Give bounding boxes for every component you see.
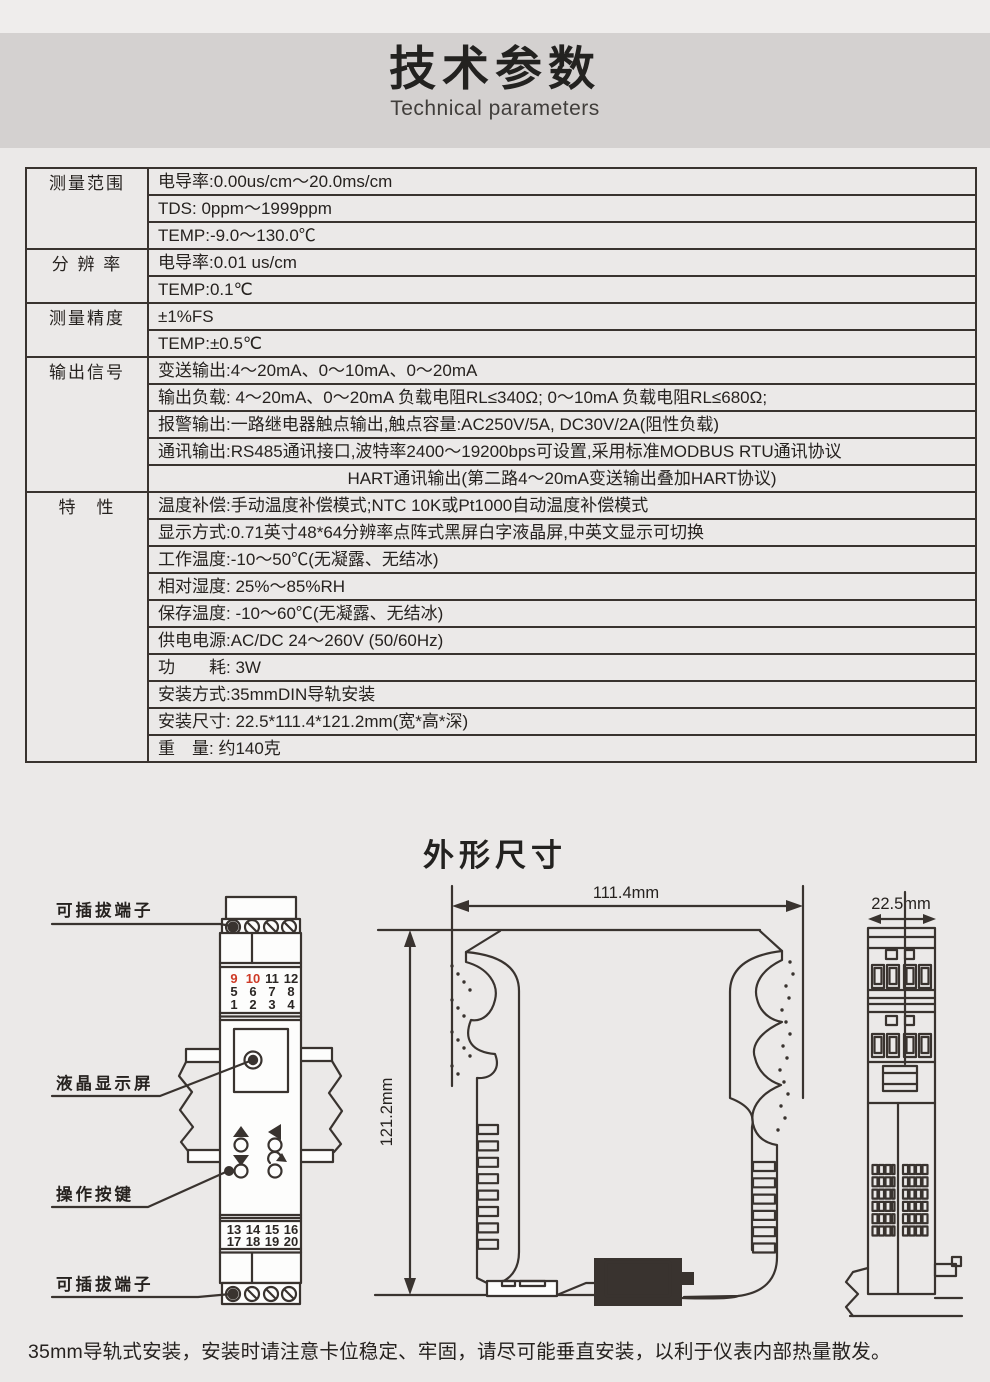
spec-value: 保存温度: -10～60℃(无凝露、无结冰) [148,600,976,627]
spec-row: 重 量: 约140克 [26,735,976,762]
spec-row: TEMP:±0.5℃ [26,330,976,357]
spec-row: 测量精度 ±1%FS [26,303,976,330]
title-band: 技术参数 Technical parameters [0,33,990,148]
spec-section-label: 特 性 [26,492,148,762]
spec-row: 相对湿度: 25%～85%RH [26,573,976,600]
spec-row: 通讯输出:RS485通讯接口,波特率2400～19200bps可设置,采用标准M… [26,438,976,465]
spec-value: TDS: 0ppm～1999ppm [148,195,976,222]
terminal-number: 1 [230,997,237,1012]
spec-value: 供电电源:AC/DC 24～260V (50/60Hz) [148,627,976,654]
width-dimension: 111.4mm [452,884,803,1098]
spec-row: 报警输出:一路继电器触点输出,触点容量:AC250V/5A, DC30V/2A(… [26,411,976,438]
spec-row: 保存温度: -10～60℃(无凝露、无结冰) [26,600,976,627]
spec-row: 安装方式:35mmDIN导轨安装 [26,681,976,708]
spec-value: 报警输出:一路继电器触点输出,触点容量:AC250V/5A, DC30V/2A(… [148,411,976,438]
spec-row: 安装尺寸: 22.5*111.4*121.2mm(宽*高*深) [26,708,976,735]
spec-row: TEMP:-9.0～130.0℃ [26,222,976,249]
dimension-drawings: 9 10 11 12 5 6 7 8 1 2 3 4 [0,880,990,1322]
installation-note: 35mm导轨式安装，安装时请注意卡位稳定、牢固，请尽可能垂直安装，以利于仪表内部… [28,1335,978,1364]
top-strip [0,0,990,33]
label-buttons: 操作按键 [56,1184,134,1204]
spec-value: TEMP:±0.5℃ [148,330,976,357]
spec-row: 显示方式:0.71英寸48*64分辨率点阵式黑屏白字液晶屏,中英文显示可切换 [26,519,976,546]
spec-section-label: 输出信号 [26,357,148,492]
dim-depth-label: 22.5mm [871,895,931,913]
terminal-number: 17 [227,1234,241,1249]
spec-row: HART通讯输出(第二路4～20mA变送输出叠加HART协议) [26,465,976,492]
spec-value: 输出负载: 4～20mA、0～20mA 负载电阻RL≤340Ω; 0～10mA … [148,384,976,411]
spec-row: 功 耗: 3W [26,654,976,681]
side-profile-drawing: 111.4mm 121.2mm [375,884,803,1306]
spec-value: 显示方式:0.71英寸48*64分辨率点阵式黑屏白字液晶屏,中英文显示可切换 [148,519,976,546]
outline-dimensions-title: 外形尺寸 [0,830,990,875]
spec-section-label: 分 辨 率 [26,249,148,303]
spec-row: 输出负载: 4～20mA、0～20mA 负载电阻RL≤340Ω; 0～10mA … [26,384,976,411]
front-view-drawing: 9 10 11 12 5 6 7 8 1 2 3 4 [52,897,342,1304]
spec-value: TEMP:-9.0～130.0℃ [148,222,976,249]
terminal-slots [872,1034,931,1057]
terminal-number: 4 [287,997,295,1012]
spec-value: 安装方式:35mmDIN导轨安装 [148,681,976,708]
terminal-number: 3 [268,997,275,1012]
vent-slots [478,1125,775,1253]
spec-value: 电导率:0.01 us/cm [148,249,976,276]
spec-value: 温度补偿:手动温度补偿模式;NTC 10K或Pt1000自动温度补偿模式 [148,492,976,519]
spec-table: 测量范围 电导率:0.00us/cm～20.0ms/cm TDS: 0ppm～1… [25,167,977,763]
spec-row: 分 辨 率 电导率:0.01 us/cm [26,249,976,276]
spec-value: 变送输出:4～20mA、0～10mA、0～20mA [148,357,976,384]
side-view-drawing: 22.5mm [846,892,962,1316]
label-terminal-top: 可插拔端子 [56,900,154,920]
spec-row: 特 性 温度补偿:手动温度补偿模式;NTC 10K或Pt1000自动温度补偿模式 [26,492,976,519]
spec-row: 供电电源:AC/DC 24～260V (50/60Hz) [26,627,976,654]
spec-section-label: 测量精度 [26,303,148,357]
terminal-slots [872,965,931,988]
latch [883,1066,917,1091]
terminal-number: 18 [246,1234,260,1249]
spec-value: 电导率:0.00us/cm～20.0ms/cm [148,168,976,195]
spec-section-label: 测量范围 [26,168,148,249]
terminal-number: 19 [265,1234,279,1249]
height-dimension: 121.2mm [378,930,416,1295]
spec-value: 通讯输出:RS485通讯接口,波特率2400～19200bps可设置,采用标准M… [148,438,976,465]
top-cap [226,897,296,919]
terminal-number: 2 [249,997,256,1012]
spec-value: 重 量: 约140克 [148,735,976,762]
spec-row: 工作温度:-10～50℃(无凝露、无结冰) [26,546,976,573]
spec-value: TEMP:0.1℃ [148,276,976,303]
vent-grid [873,1165,928,1236]
spec-value: 功 耗: 3W [148,654,976,681]
din-clip [375,1258,738,1306]
spec-value: 安装尺寸: 22.5*111.4*121.2mm(宽*高*深) [148,708,976,735]
dim-height-label: 121.2mm [378,1078,396,1147]
spec-row: 测量范围 电导率:0.00us/cm～20.0ms/cm [26,168,976,195]
label-lcd: 液晶显示屏 [56,1073,154,1093]
spec-value: HART通讯输出(第二路4～20mA变送输出叠加HART协议) [148,465,976,492]
depth-dimension: 22.5mm [868,892,936,1064]
spec-row: TDS: 0ppm～1999ppm [26,195,976,222]
dim-width-label: 111.4mm [593,884,659,902]
spec-row: 输出信号 变送输出:4～20mA、0～10mA、0～20mA [26,357,976,384]
terminal-number: 20 [284,1234,298,1249]
din-rail-icon [846,1257,962,1316]
page-subtitle: Technical parameters [0,97,990,121]
page-title: 技术参数 [0,33,990,95]
spec-value: 工作温度:-10～50℃(无凝露、无结冰) [148,546,976,573]
label-terminal-bottom: 可插拔端子 [56,1274,154,1294]
spec-row: TEMP:0.1℃ [26,276,976,303]
spec-value: ±1%FS [148,303,976,330]
spec-value: 相对湿度: 25%～85%RH [148,573,976,600]
